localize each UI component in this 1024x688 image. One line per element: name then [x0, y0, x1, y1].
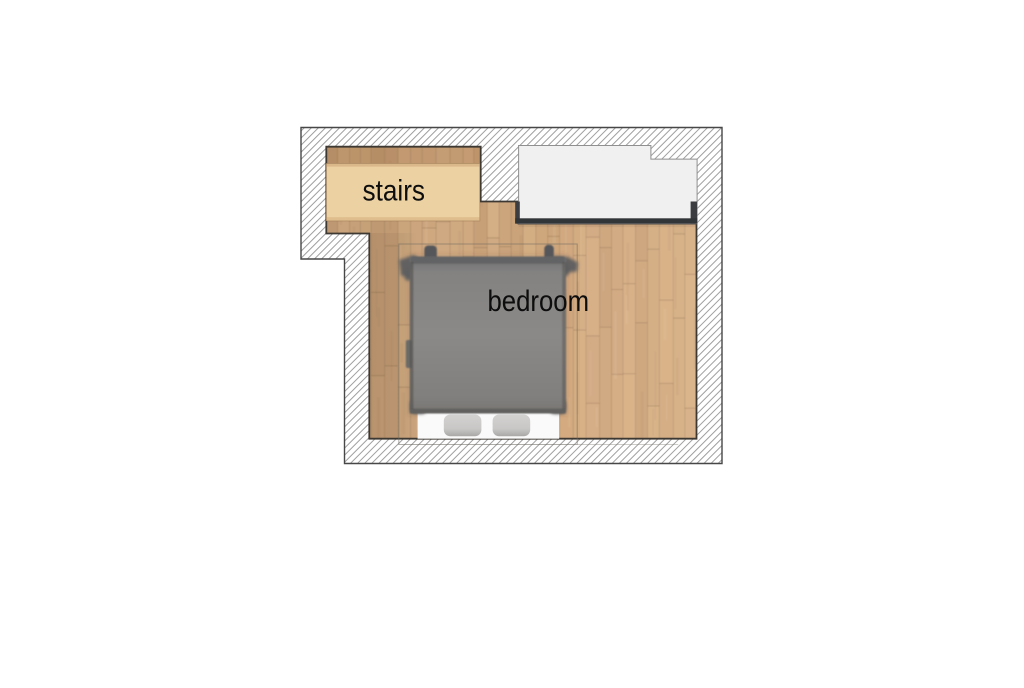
svg-text:bedroom: bedroom [488, 285, 590, 318]
svg-text:stairs: stairs [363, 175, 426, 208]
